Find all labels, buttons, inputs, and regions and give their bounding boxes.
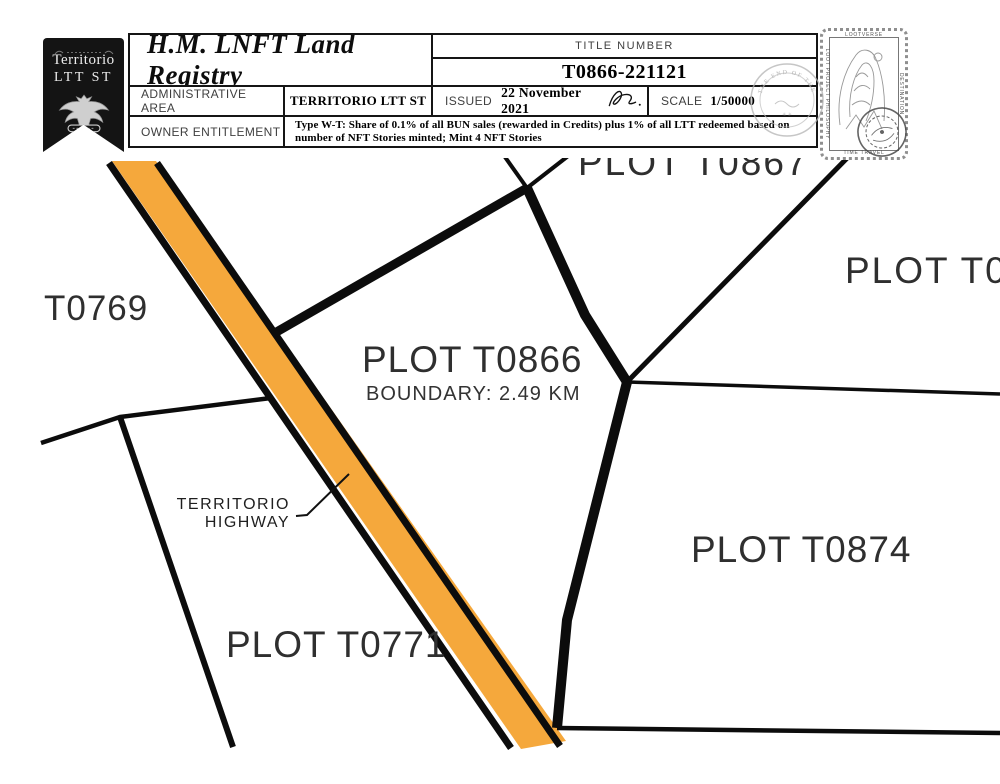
boundary-t0right-t0874 [627,382,1000,394]
highway-label-line1: TERRITORIO [160,496,290,514]
plot-label-t0769: T0769 [44,291,148,326]
plot-label-right-clipped: PLOT T08 [845,252,1000,289]
issued-label: ISSUED [445,94,492,108]
issued-cell: ISSUED 22 November 2021 [433,87,649,115]
boundary-t0867-east-upper [527,153,572,188]
postage-stamp: LOOTVERSE DESTINATION LOOT PROJECT PHILO… [820,28,908,160]
boundary-t0771-west [120,417,233,747]
owner-entitlement-cell: Type W-T: Share of 0.1% of all BUN sales… [285,117,816,146]
plot-t0866-boundary-length: BOUNDARY: 2.49 KM [366,384,580,404]
svg-text:✳ ✳: ✳ ✳ [782,112,792,118]
header-row-title: H.M. LNFT Land Registry TITLE NUMBER T08… [130,35,816,87]
boundary-t0866-t0874 [557,382,627,728]
highway-label-line2: HIGHWAY [160,514,290,532]
header-row-owner: OWNER ENTITLEMENT Type W-T: Share of 0.1… [130,117,816,146]
header-row-admin: ADMINISTRATIVE AREA TERRITORIO LTT ST IS… [130,87,816,117]
title-number-label: TITLE NUMBER [433,35,816,59]
banner-title-line2: LTT ST [43,70,124,86]
plot-label-t0771: PLOT T0771 [226,626,447,663]
registry-seal-watermark: THE END OF THE WORLD ✳ ✳ [747,60,827,140]
scale-label: SCALE [661,94,702,108]
highway-label: TERRITORIO HIGHWAY [160,496,290,531]
boundary-t0867-t0right [627,148,857,382]
owner-entitlement-text: Type W-T: Share of 0.1% of all BUN sales… [285,117,816,146]
owner-entitlement-label: OWNER ENTITLEMENT [130,117,285,146]
signature-icon [606,87,647,113]
land-registry-certificate: PLOT T0867 PLOT T08 T0769 PLOT T0866 BOU… [0,0,1000,784]
admin-area-label: ADMINISTRATIVE AREA [130,87,285,115]
banner-ornament [53,43,115,50]
boundary-t0866-northwest [273,188,527,334]
plot-label-t0866: PLOT T0866 [362,341,583,378]
boundary-t0769-t0771 [41,398,271,443]
registry-title: H.M. LNFT Land Registry [130,35,433,85]
issued-date: 22 November 2021 [501,87,595,115]
ornament-swirls [53,49,115,56]
plot-label-t0874: PLOT T0874 [691,531,912,568]
admin-area-value: TERRITORIO LTT ST [285,87,433,115]
registry-header-table: H.M. LNFT Land Registry TITLE NUMBER T08… [128,33,818,148]
postmark-circle-icon [853,103,911,161]
boundary-t0874-south [557,728,1000,733]
